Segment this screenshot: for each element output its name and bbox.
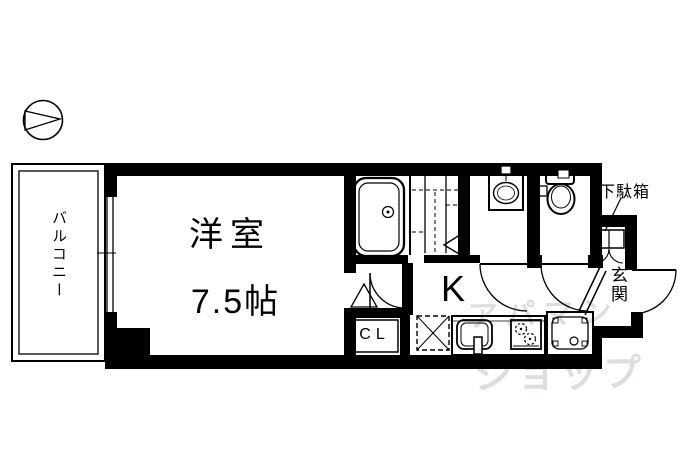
room-door-swing bbox=[351, 273, 405, 308]
balcony-label: バルコニー bbox=[48, 210, 69, 300]
refrigerator-space-icon bbox=[417, 316, 449, 350]
main-room-label: 洋室 bbox=[160, 207, 300, 256]
entrance-door-swing bbox=[632, 270, 676, 314]
floor-plan-image: バルコニー 洋室 7.5帖 K CL 下駄箱 玄関 アパマン ショップ bbox=[0, 0, 690, 460]
main-room-size-label: 7.5帖 bbox=[138, 274, 333, 323]
kitchen-label: K bbox=[441, 268, 465, 310]
shoe-cabinet-label: 下駄箱 bbox=[599, 178, 650, 202]
bathtub-icon bbox=[354, 163, 410, 256]
watermark-line1: アパマン bbox=[467, 286, 620, 335]
laundry-area-lines bbox=[412, 167, 466, 258]
washbasin-icon bbox=[489, 166, 523, 210]
watermark-line2: ショップ bbox=[474, 342, 647, 400]
closet-label: CL bbox=[351, 326, 398, 344]
sliding-window-icon bbox=[97, 197, 116, 312]
compass-icon bbox=[24, 101, 63, 140]
